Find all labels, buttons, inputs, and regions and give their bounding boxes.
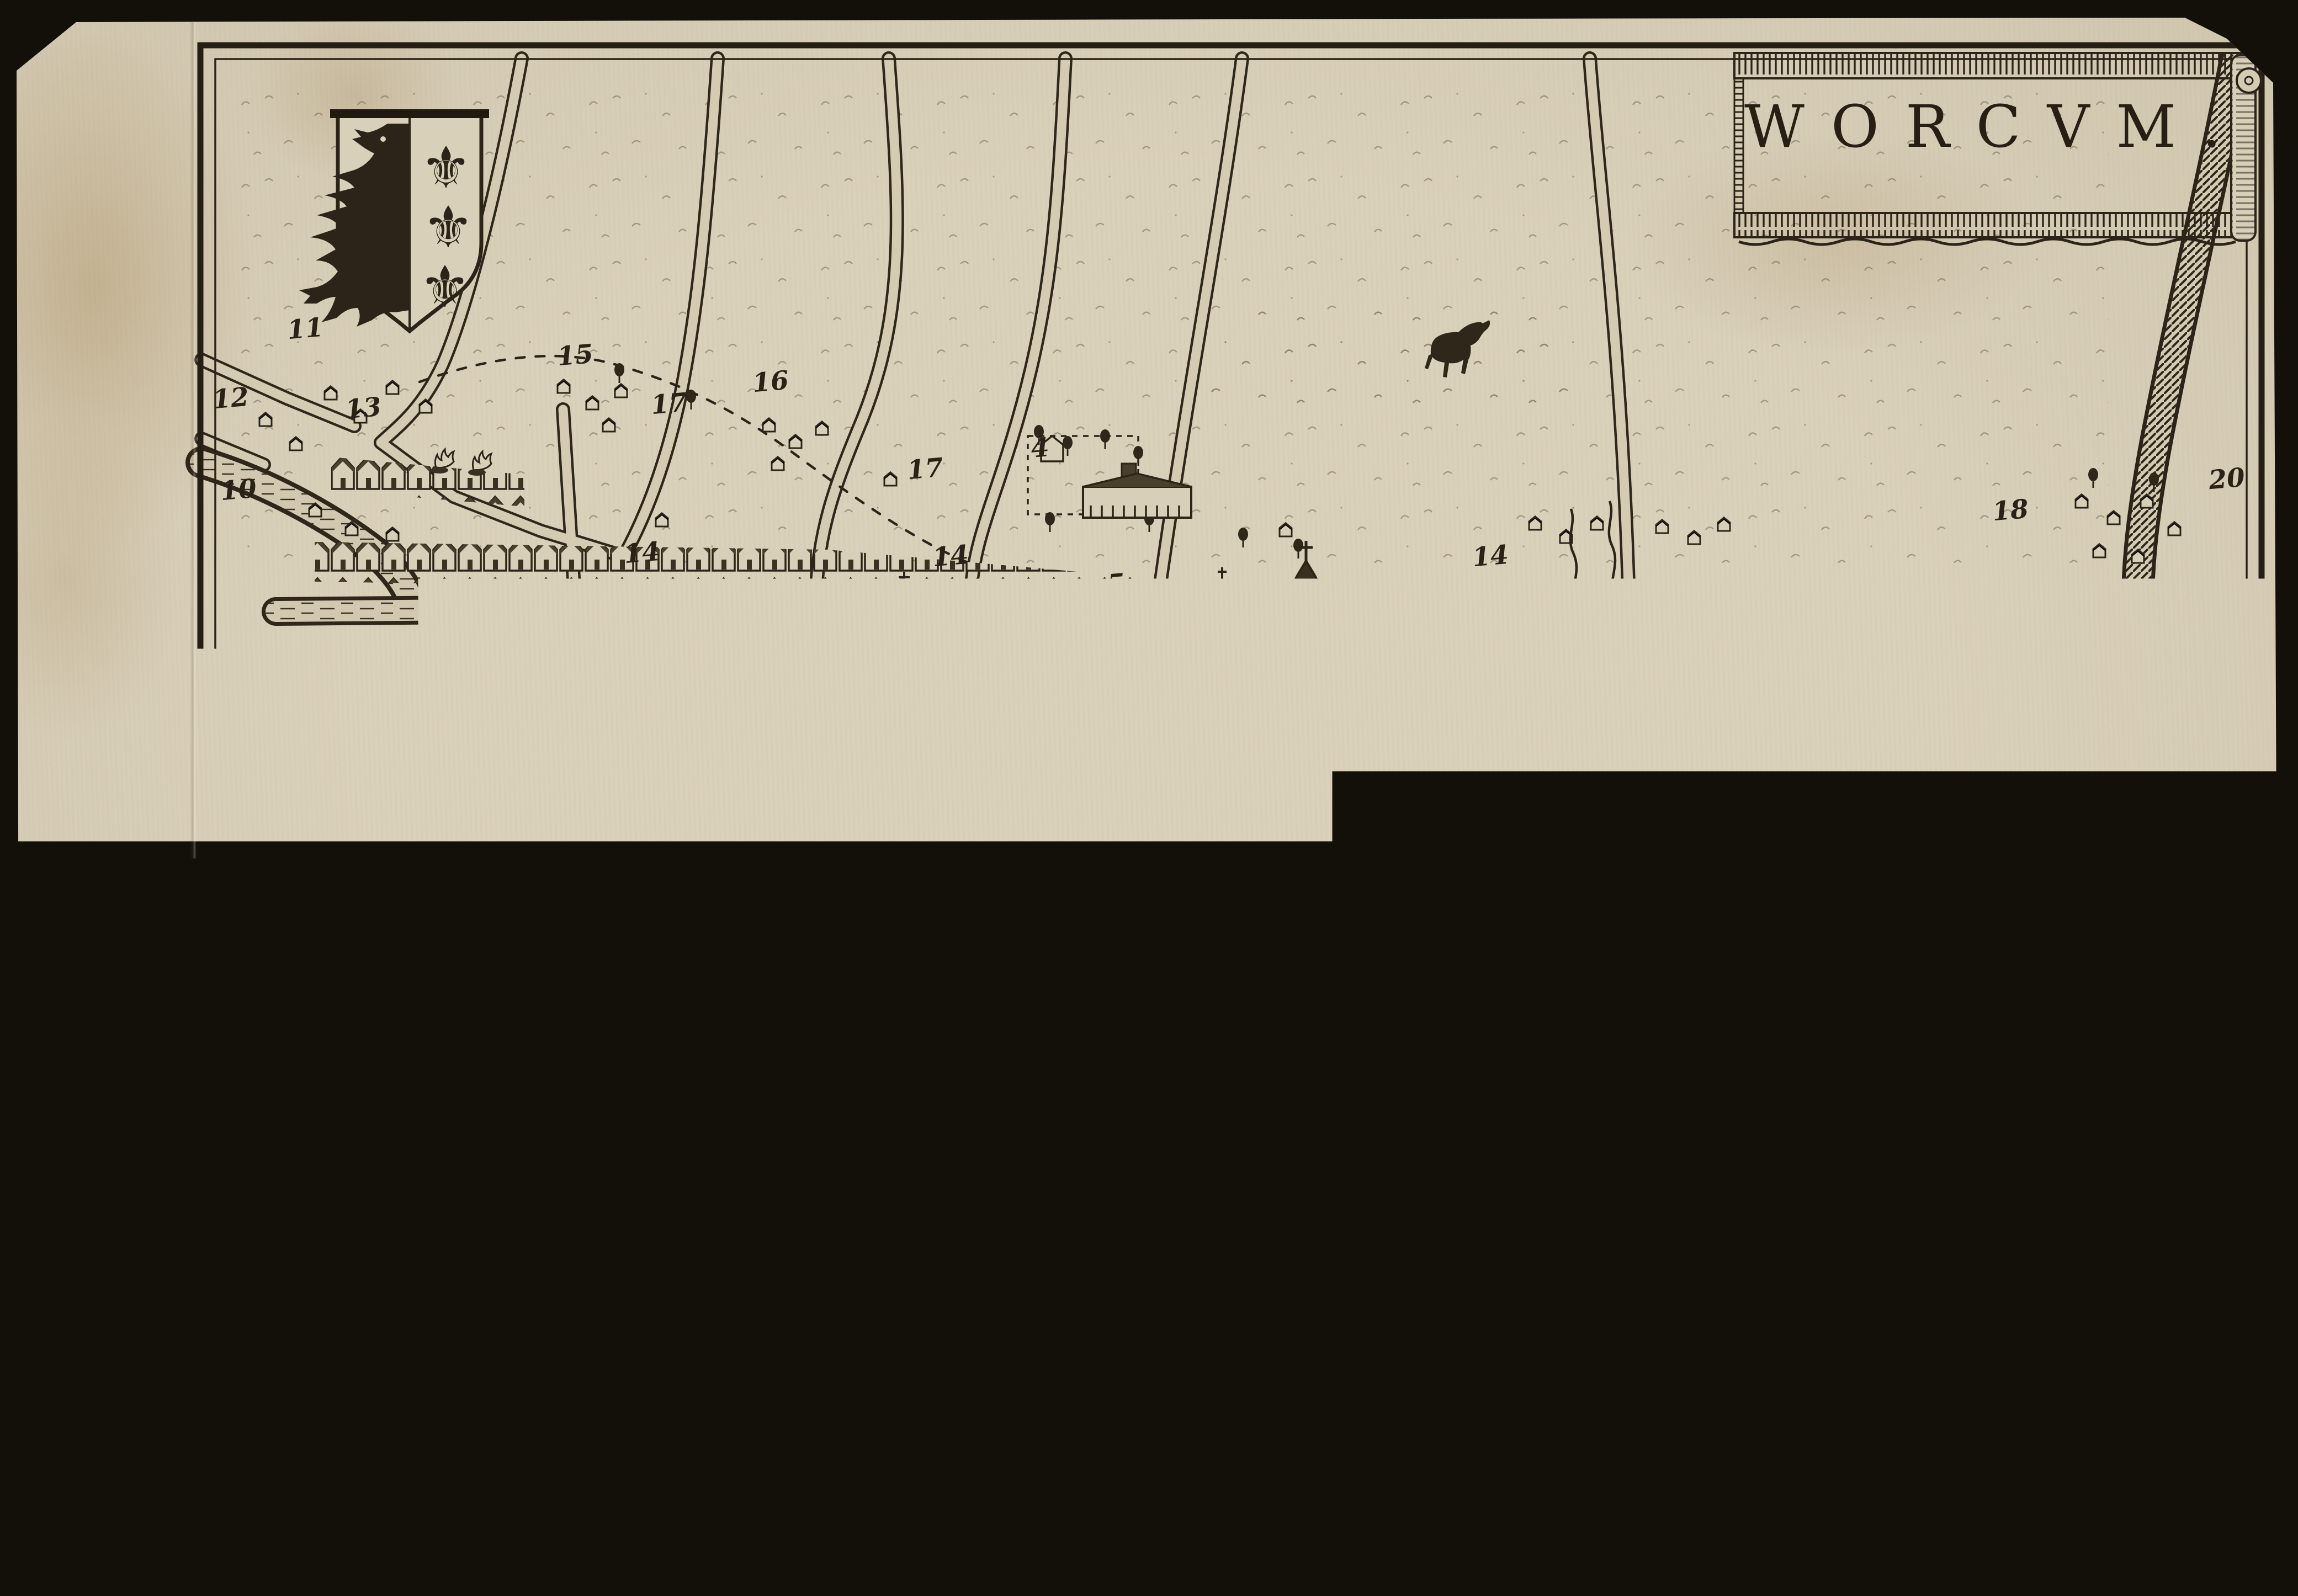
- map-marker-18: 18: [1991, 494, 2030, 527]
- legend-item-14: 14. De Delft: [736, 1229, 894, 1261]
- field-texture: [232, 77, 2109, 1269]
- legend-item-7: 7. De Vaert: [574, 1166, 727, 1198]
- fleur-de-lis-icon: ⚜: [419, 253, 470, 321]
- pencil-squiggle: [31, 1388, 43, 1509]
- legend-item-16: 16. De Bÿdt: [903, 1134, 1061, 1166]
- map-marker-12: 12: [211, 382, 250, 415]
- pencil-inventory-note: 983: [2110, 1368, 2226, 1454]
- legend-item-15: 15. Einighe buer: [736, 1260, 894, 1292]
- engraved-map: ⚜ ⚜ ⚜: [0, 0, 2298, 1596]
- legend-column: 6. 't Gast-huÿs7. De Vaert8. De Cappel9.…: [569, 1130, 731, 1292]
- legend-column: 1. De Groote kerck2. 't Raedthuys3. De M…: [401, 1130, 569, 1292]
- legend-item-18: 18. 't Wester Endt: [903, 1197, 1061, 1229]
- map-marker-17: 17: [650, 387, 688, 421]
- map-marker-17: 17: [906, 453, 944, 486]
- map-marker-10: 10: [219, 474, 258, 507]
- legend-item-20: 20. Zee dÿck: [903, 1260, 1061, 1292]
- legend-column: 11. 't Vliet12. Rardie buyr13. 't Bolwer…: [731, 1130, 898, 1292]
- paper-crease-vertical: [190, 22, 197, 1573]
- map-sheet: ⚜ ⚜ ⚜ WORCVM. 12345677891011121314141415…: [0, 0, 2298, 1596]
- map-marker-14: 14: [1471, 540, 1510, 573]
- legend-item-10: 10. De Holmeer: [574, 1260, 727, 1292]
- map-marker-20: 20: [2196, 873, 2235, 906]
- legend-item-9: 9. 't Noorder Endt: [574, 1229, 727, 1261]
- map-marker-16: 16: [751, 365, 790, 398]
- legend-item-13: 13. 't Bolwerck: [736, 1197, 894, 1229]
- map-marker-20: 20: [2207, 462, 2246, 496]
- raedthuys: [1073, 629, 1111, 698]
- legend-item-2: 2. 't Raedthuys: [406, 1166, 565, 1198]
- map-marker-3: 3: [1107, 720, 1127, 752]
- legend-column: 16. De Bÿdt17. Voet wegh18. 't Wester En…: [898, 1130, 1063, 1292]
- legend-item-17: 17. Voet wegh: [903, 1166, 1061, 1198]
- map-marker-9: 9: [544, 625, 564, 657]
- fleur-de-lis-icon: ⚜: [420, 134, 471, 201]
- map-marker-7: 7: [581, 773, 602, 805]
- map-marker-15: 15: [556, 339, 595, 372]
- map-marker-1: 1: [1207, 708, 1227, 740]
- fleur-de-lis-icons: ⚜ ⚜ ⚜: [419, 134, 474, 321]
- legend-item-3: 3. De Marckt: [406, 1197, 565, 1229]
- legend-item-8: 8. De Cappel: [574, 1197, 727, 1229]
- map-marker-13: 13: [344, 392, 383, 425]
- legend-item-4: 4. Het Clooster: [406, 1229, 565, 1261]
- windmill-east-icon: [1770, 605, 1817, 664]
- legend-item-1: 1. De Groote kerck: [406, 1134, 565, 1166]
- map-marker-7: 7: [986, 772, 1007, 804]
- legend-item-5: 5. Bagÿne straet: [406, 1260, 565, 1292]
- map-marker-5: 5: [1106, 568, 1126, 600]
- page-title: WORCVM.: [1744, 93, 2230, 161]
- windmill-west-icon: [226, 744, 274, 804]
- paper-crease-horizontal: [17, 1342, 2276, 1348]
- legend-item-11: 11. 't Vliet: [736, 1134, 894, 1166]
- map-marker-14: 14: [623, 536, 661, 570]
- map-marker-19: 19: [2037, 758, 2076, 791]
- legend-item-19: 19. Nieuwe sluys: [903, 1229, 1061, 1261]
- map-marker-6: 6: [871, 642, 891, 674]
- map-marker-2: 2: [1085, 689, 1106, 721]
- legend: 1. De Groote kerck2. 't Raedthuys3. De M…: [401, 1130, 1069, 1292]
- map-marker-4: 4: [1029, 432, 1050, 464]
- fleur-de-lis-icon: ⚜: [422, 194, 474, 261]
- legend-item-12: 12. Rardie buyr: [736, 1166, 894, 1198]
- legend-item-6: 6. 't Gast-huÿs: [574, 1134, 727, 1166]
- map-marker-14: 14: [931, 540, 970, 573]
- map-marker-8: 8: [454, 802, 475, 834]
- map-marker-11: 11: [286, 312, 325, 345]
